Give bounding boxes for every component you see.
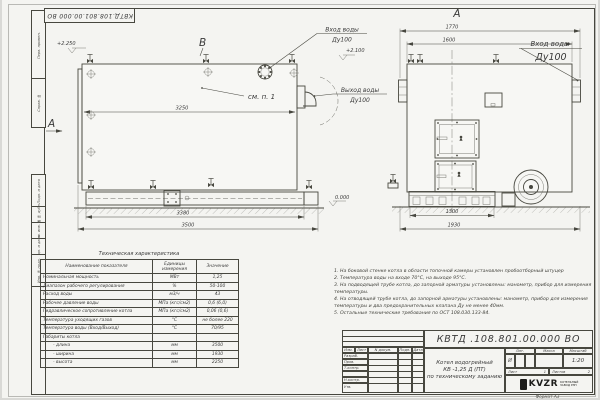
tech-table-title: Техническая характеристика xyxy=(40,251,238,257)
sheets-label: Листов xyxy=(552,370,565,374)
table-row: - ширинамм1930 xyxy=(41,350,239,359)
table-row: - длинамм3500 xyxy=(41,342,239,351)
stamp-label: Справ. № xyxy=(37,94,41,112)
sheets-cell: Листов 2 xyxy=(549,368,593,375)
logo-sub2: ЗАВОД РЭП xyxy=(560,384,578,387)
product-line1: Котел водогрейный xyxy=(427,360,502,367)
table-row: Гидравлическое сопротивление котлаМПа (к… xyxy=(41,308,239,317)
note-4: 4. На отводящей трубе котла, до запорной… xyxy=(334,296,592,310)
table-row: Габариты котла xyxy=(41,333,239,342)
tech-table-header: Наименование показателя Единицы измерени… xyxy=(41,260,239,274)
revision-grid xyxy=(342,330,424,347)
table-row: Температура уходящих газов°Сне более 220 xyxy=(41,316,239,325)
table-row: Диапазон рабочего регулирования%50-100 xyxy=(41,282,239,291)
table-row: Номинальная мощностьМВт1,25 xyxy=(41,274,239,283)
logo-cell: KVZR КОТЕЛЬНЫЙ ЗАВОД РЭП xyxy=(505,375,593,393)
note-2: 2. Температура воды на входе 70°С, на вы… xyxy=(334,275,592,282)
kvzr-logo-text: KVZR xyxy=(529,379,558,389)
lit-cell-3 xyxy=(525,354,535,368)
stamp-label: Перв. примен. xyxy=(37,32,41,59)
doc-number-top: КВТД.108.801.00.000 ВО xyxy=(47,12,133,19)
drawing-sheet: Перв. примен. Справ. № Подп. и дата Инв.… xyxy=(2,0,598,398)
sign-utv: Утв. xyxy=(342,383,368,393)
col-value: Значение xyxy=(197,260,239,274)
doc-number-cell: КВТД .108.801.00.000 ВО xyxy=(424,330,593,348)
note-5: 5. Остальные технические требования по О… xyxy=(334,310,592,317)
sheet-value: 1 xyxy=(544,370,546,374)
tech-characteristics: Техническая характеристика Наименование … xyxy=(40,251,238,368)
format-note: Формат А3 xyxy=(502,394,593,399)
stamp-sprav-no: Справ. № xyxy=(31,78,46,128)
title-block: Изм. Лист N докум. Подп. Дата Разраб. Пр… xyxy=(342,330,593,393)
mass-value xyxy=(535,354,563,368)
sheets-value: 2 xyxy=(588,370,590,374)
product-name-cell: Котел водогрейный КВ -1,25 Д (ПТ) по тех… xyxy=(424,348,505,393)
table-row: Расход водым3/ч43 xyxy=(41,291,239,300)
note-3: 3. На подводящей трубе котла, до запорно… xyxy=(334,282,592,296)
sheet-cell: Лист 1 xyxy=(505,368,549,375)
table-row: - высотамм2250 xyxy=(41,359,239,368)
tech-table: Наименование показателя Единицы измерени… xyxy=(40,259,239,368)
doc-number: КВТД .108.801.00.000 ВО xyxy=(437,334,581,345)
kvzr-logo-mark-icon xyxy=(520,379,527,390)
lit-value: И xyxy=(505,354,515,368)
col-name: Наименование показателя xyxy=(41,260,153,274)
note-1: 1. На боковой стенке котла в области топ… xyxy=(334,268,592,275)
product-line3: по техническому заданию xyxy=(427,374,502,381)
sheet-label: Лист xyxy=(508,370,517,374)
technical-notes: 1. На боковой стенке котла в области топ… xyxy=(334,268,592,317)
lit-cell-2 xyxy=(515,354,525,368)
table-row: Температура воды (Вход/Выход)°С70/95 xyxy=(41,325,239,334)
doc-number-top-box: КВТД.108.801.00.000 ВО xyxy=(44,8,135,23)
scale-value: 1:20 xyxy=(563,354,593,368)
col-units: Единицы измерения xyxy=(153,260,197,274)
stamp-label: Подп. и дата xyxy=(37,179,41,203)
table-row: Рабочее давление водыМПа (кгс/см2)0,6 (6… xyxy=(41,299,239,308)
product-line2: КВ -1,25 Д (ПТ) xyxy=(427,367,502,374)
